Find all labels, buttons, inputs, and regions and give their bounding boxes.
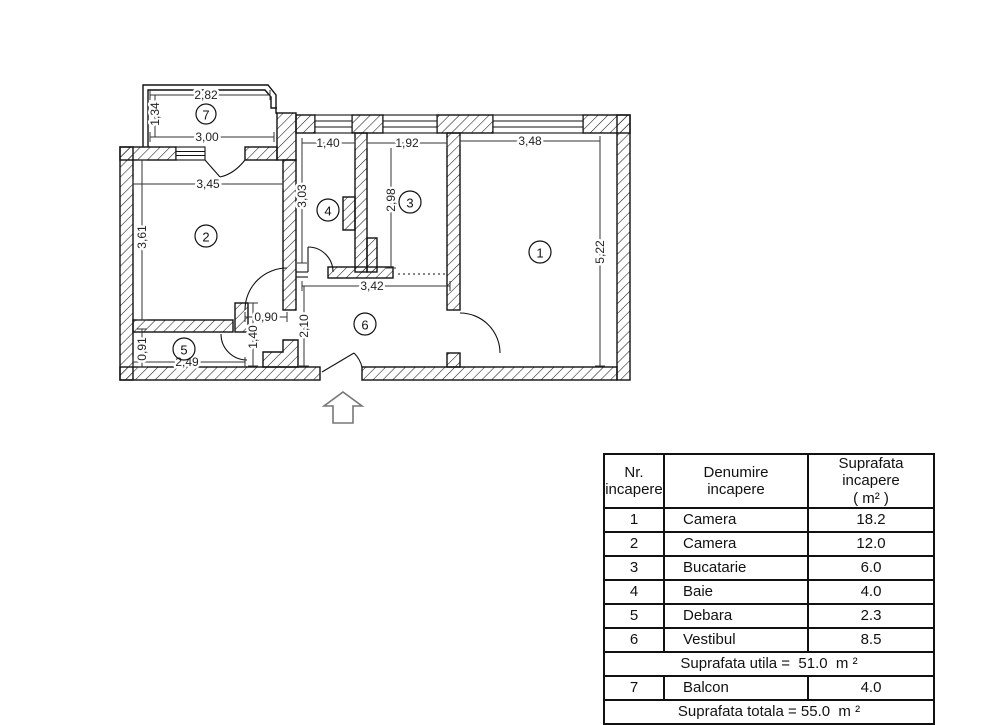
dim-vestibule-width: 3,42 (360, 279, 384, 293)
room-label-1: 1 (536, 246, 543, 261)
table-header-row: Nr. incapere Denumire incapere Suprafata… (604, 454, 934, 508)
dim-balcony-depth: 1,34 (148, 102, 162, 126)
dim-nook-height: 1,40 (246, 325, 260, 349)
header-nr-incapere: Nr. incapere (604, 454, 664, 508)
suprafata-totala-row: Suprafata totala = 55.0 m ² (604, 700, 934, 724)
cell-name: Vestibul (664, 628, 808, 652)
dim-room3-width: 1,92 (395, 136, 419, 150)
cell-nr: 6 (604, 628, 664, 652)
cell-name: Debara (664, 604, 808, 628)
table-row: 1 Camera 18.2 (604, 508, 934, 532)
dim-room1-height: 5,22 (593, 240, 607, 264)
dim-room5-height: 0,91 (135, 337, 149, 361)
table-row: 5 Debara 2.3 (604, 604, 934, 628)
dim-balcony-bottom: 3,00 (195, 130, 219, 144)
cell-nr: 2 (604, 532, 664, 556)
suprafata-utila: Suprafata utila = 51.0 m ² (604, 652, 934, 676)
room-label-3: 3 (406, 196, 413, 211)
dim-balcony-width: 2,82 (194, 88, 218, 102)
cell-nr: 4 (604, 580, 664, 604)
table-row: 2 Camera 12.0 (604, 532, 934, 556)
header-suprafata-incapere: Suprafata incapere ( m² ) (808, 454, 934, 508)
cell-area: 8.5 (808, 628, 934, 652)
cell-name: Camera (664, 532, 808, 556)
header-denumire-incapere: Denumire incapere (664, 454, 808, 508)
table-row: 4 Baie 4.0 (604, 580, 934, 604)
areas-table: Nr. incapere Denumire incapere Suprafata… (603, 453, 935, 725)
entrance-arrow-icon (324, 392, 362, 423)
room-label-6: 6 (361, 318, 368, 333)
cell-name: Baie (664, 580, 808, 604)
table-row: 6 Vestibul 8.5 (604, 628, 934, 652)
room-label-7: 7 (202, 108, 209, 123)
room-label-5: 5 (180, 343, 187, 358)
room-label-2: 2 (202, 230, 209, 245)
room-label-4: 4 (324, 204, 331, 219)
dim-room3-height: 2,98 (384, 188, 398, 212)
cell-area: 18.2 (808, 508, 934, 532)
suprafata-utila-row: Suprafata utila = 51.0 m ² (604, 652, 934, 676)
cell-area: 2.3 (808, 604, 934, 628)
dim-room4-height: 3,03 (295, 184, 309, 208)
cell-nr: 3 (604, 556, 664, 580)
cell-nr: 1 (604, 508, 664, 532)
dim-vestibule-height: 2,10 (297, 314, 311, 338)
suprafata-totala: Suprafata totala = 55.0 m ² (604, 700, 934, 724)
cell-area: 12.0 (808, 532, 934, 556)
dim-room2-width: 3,45 (196, 177, 220, 191)
dim-room4-width: 1,40 (316, 136, 340, 150)
cell-area: 6.0 (808, 556, 934, 580)
table-row: 3 Bucatarie 6.0 (604, 556, 934, 580)
dim-room1-width: 3,48 (518, 134, 542, 148)
cell-name: Camera (664, 508, 808, 532)
cell-nr: 5 (604, 604, 664, 628)
dim-room2-height: 3,61 (135, 225, 149, 249)
dim-door-width: 0,90 (254, 310, 278, 324)
cell-area: 4.0 (808, 580, 934, 604)
cell-name: Bucatarie (664, 556, 808, 580)
